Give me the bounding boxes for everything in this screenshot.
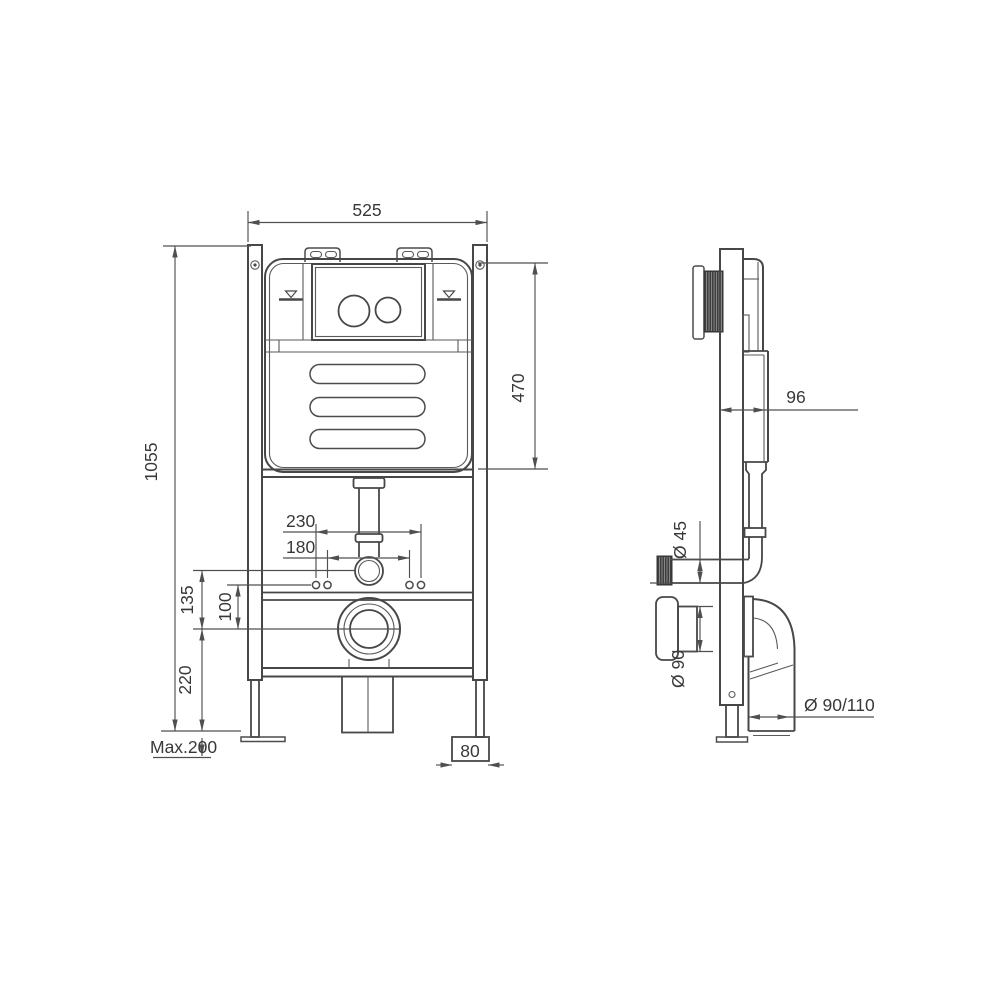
flush-bend [355, 557, 383, 585]
dim-label-fixing-spread-inner: 180 [286, 537, 315, 557]
dim-label-leg-adjustment: Max.200 [150, 737, 217, 757]
technical-drawing-page: 525 1055 470 230 180 [0, 0, 1000, 1000]
dim-frame-width: 525 [248, 200, 487, 242]
cistern [265, 248, 472, 472]
dim-label-flush-bend-to-outlet: 135 [177, 585, 197, 614]
dim-label-fixing-to-outlet: 100 [215, 592, 235, 621]
cistern-frame-drawing: 525 1055 470 230 180 [0, 0, 1000, 1000]
dim-label-flush-pipe-diameter: Ø 45 [670, 521, 690, 559]
dim-label-frame-width: 525 [352, 200, 381, 220]
crossbars [262, 470, 473, 677]
waste-elbow-side [744, 597, 795, 736]
foot-plate-left [241, 737, 285, 742]
dim-frame-depth: 96 [720, 387, 858, 410]
dim-fixing-to-outlet: 100 [215, 585, 238, 629]
dim-cistern-height: 470 [478, 263, 548, 469]
flush-plate-side [693, 266, 704, 339]
dim-frame-height: 1055 [141, 246, 251, 731]
rib-slot [310, 398, 425, 417]
flush-button-large [339, 296, 370, 327]
dim-label-frame-height: 1055 [141, 443, 161, 482]
rib-slot [310, 365, 425, 384]
dim-label-foot-width: 80 [460, 741, 480, 761]
rib-slot [310, 430, 425, 449]
dim-leg-adjustment: Max.200 [150, 737, 217, 758]
flush-stub-ribbed [657, 556, 672, 585]
dim-label-frame-depth: 96 [786, 387, 805, 407]
dim-flush-bend-to-outlet: 135 [177, 571, 202, 630]
water-level-icon [279, 291, 303, 300]
access-panel [312, 264, 425, 340]
cistern-side-profile [743, 259, 768, 559]
flush-button-small [376, 298, 401, 323]
waste-outlet [338, 598, 400, 733]
feet [241, 737, 489, 761]
dim-outlet-center-height: 220 [175, 629, 202, 731]
dim-outlet-flange-diameter: Ø 90 [668, 607, 713, 688]
dim-label-outlet-center-height: 220 [175, 665, 195, 694]
dim-label-cistern-height: 470 [508, 373, 528, 402]
dim-outlet-pipe-diameter: Ø 90/110 [749, 695, 875, 717]
dim-label-outlet-pipe-diameter: Ø 90/110 [804, 695, 875, 715]
water-level-icon [437, 291, 461, 300]
dim-fixing-spread-inner: 180 [283, 537, 410, 578]
dim-label-outlet-flange-diameter: Ø 90 [668, 650, 688, 688]
dim-label-fixing-spread-outer: 230 [286, 511, 315, 531]
flush-bend-side [657, 556, 762, 585]
front-view [241, 245, 489, 761]
